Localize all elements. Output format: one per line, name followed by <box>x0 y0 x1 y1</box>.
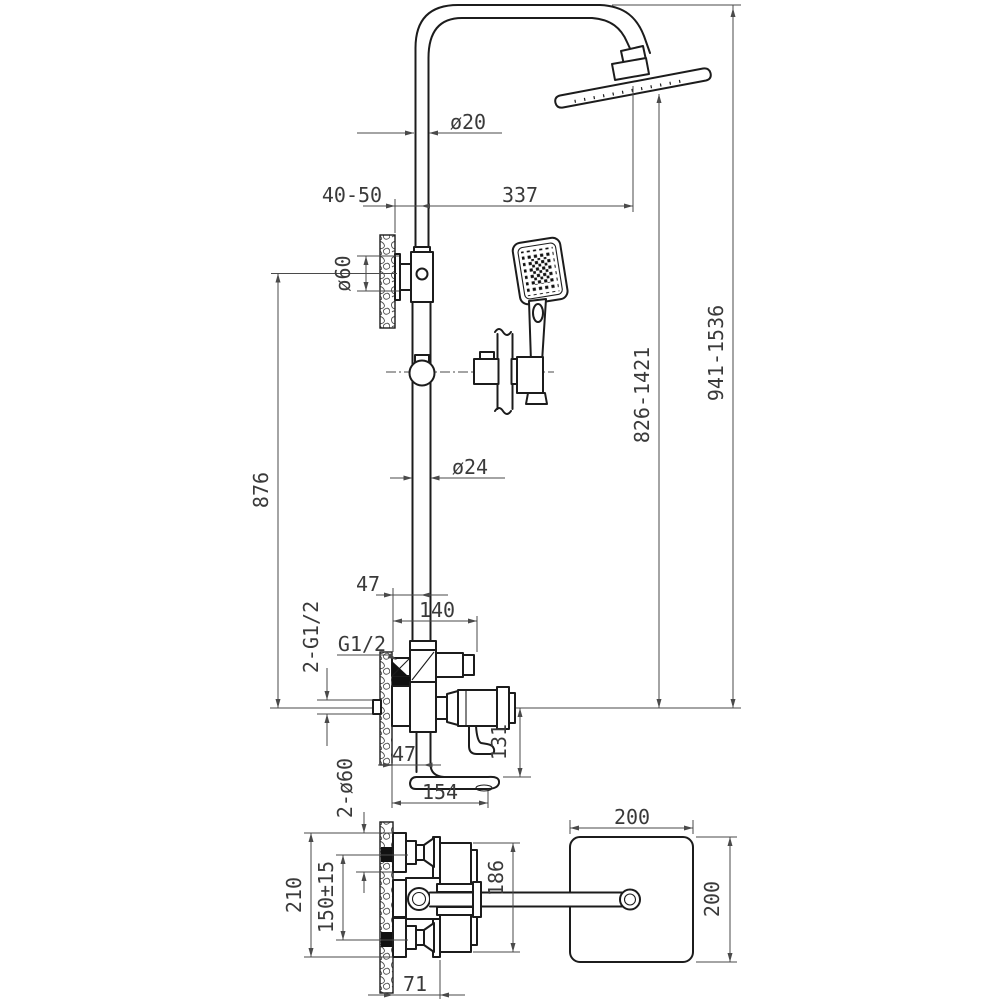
mixer-body <box>410 682 436 732</box>
dim-mixer-projection: 140 <box>419 598 455 622</box>
handle-ring <box>509 693 515 723</box>
sleeve-cap <box>414 247 430 252</box>
wall-section-hatch-top <box>380 235 395 328</box>
cartridge-ring <box>436 697 447 719</box>
dim-plan-wall-to-plate: 71 <box>403 972 427 996</box>
dim-spout-projection: 154 <box>422 780 458 804</box>
plan-ball-joint <box>620 890 640 910</box>
dim-plan-body-depth: 186 <box>484 860 508 896</box>
plan-view <box>380 822 693 993</box>
dim-inlet-threads-count: 2-G1/2 <box>299 601 323 673</box>
dim-mixer-wall-offset: 47 <box>356 572 380 596</box>
handle-cap <box>497 687 509 729</box>
diverter-knob <box>410 361 435 386</box>
wall-bracket <box>380 235 433 328</box>
dim-overall-height-range: 941-1536 <box>704 305 728 401</box>
dim-riser-length: 876 <box>249 472 273 508</box>
mixer-escutcheon <box>392 686 410 726</box>
technical-drawing-canvas: ø20 40-50 337 ø60 876 ø24 826-1421 941-1… <box>0 0 1000 1000</box>
dim-plan-overall-height: 210 <box>282 877 306 913</box>
riser-union-nut <box>410 641 436 650</box>
dim-riser-lower-diameter: ø24 <box>452 455 488 479</box>
dim-arm-projection: 337 <box>502 183 538 207</box>
dim-spout-wall-offset: 47 <box>392 742 416 766</box>
shower-drawing: ø20 40-50 337 ø60 876 ø24 826-1421 941-1… <box>0 0 1000 1000</box>
cartridge-flare <box>447 691 458 725</box>
hand-shower-button <box>533 304 543 322</box>
dim-bracket-escutcheon-diameter: ø60 <box>331 255 355 291</box>
supply-stub <box>373 700 381 714</box>
hand-shower <box>474 237 569 414</box>
hand-shower-inlet <box>526 393 547 404</box>
dim-spout-drop-height: 131 <box>487 724 511 760</box>
dim-riser-upper-diameter: ø20 <box>450 110 486 134</box>
cartridge-cylinder <box>458 690 497 726</box>
bracket-pivot <box>417 269 428 280</box>
dim-head-depth: 200 <box>700 881 724 917</box>
pipe-break-bottom <box>495 408 511 414</box>
dim-inlet-spacing: 150±15 <box>314 861 338 933</box>
dim-escutcheon-count-diameter: 2-ø60 <box>333 758 357 818</box>
centerlines <box>270 372 741 708</box>
dim-wall-offset-range: 40-50 <box>322 183 382 207</box>
front-view <box>373 5 711 791</box>
dim-head-height-range: 826-1421 <box>630 347 654 443</box>
elbow-side-port <box>436 653 463 677</box>
wall-union-g12 <box>392 658 410 685</box>
dim-inlet-thread: G1/2 <box>338 632 386 656</box>
mixer-assembly <box>373 641 515 791</box>
riser-pipe <box>410 302 435 641</box>
side-port-cap <box>463 655 474 675</box>
holder-tab <box>480 352 494 359</box>
bracket-arm <box>400 264 411 290</box>
dim-head-width: 200 <box>614 805 650 829</box>
head-mounting-boss <box>612 58 649 80</box>
holder-clamp-right <box>517 357 543 393</box>
